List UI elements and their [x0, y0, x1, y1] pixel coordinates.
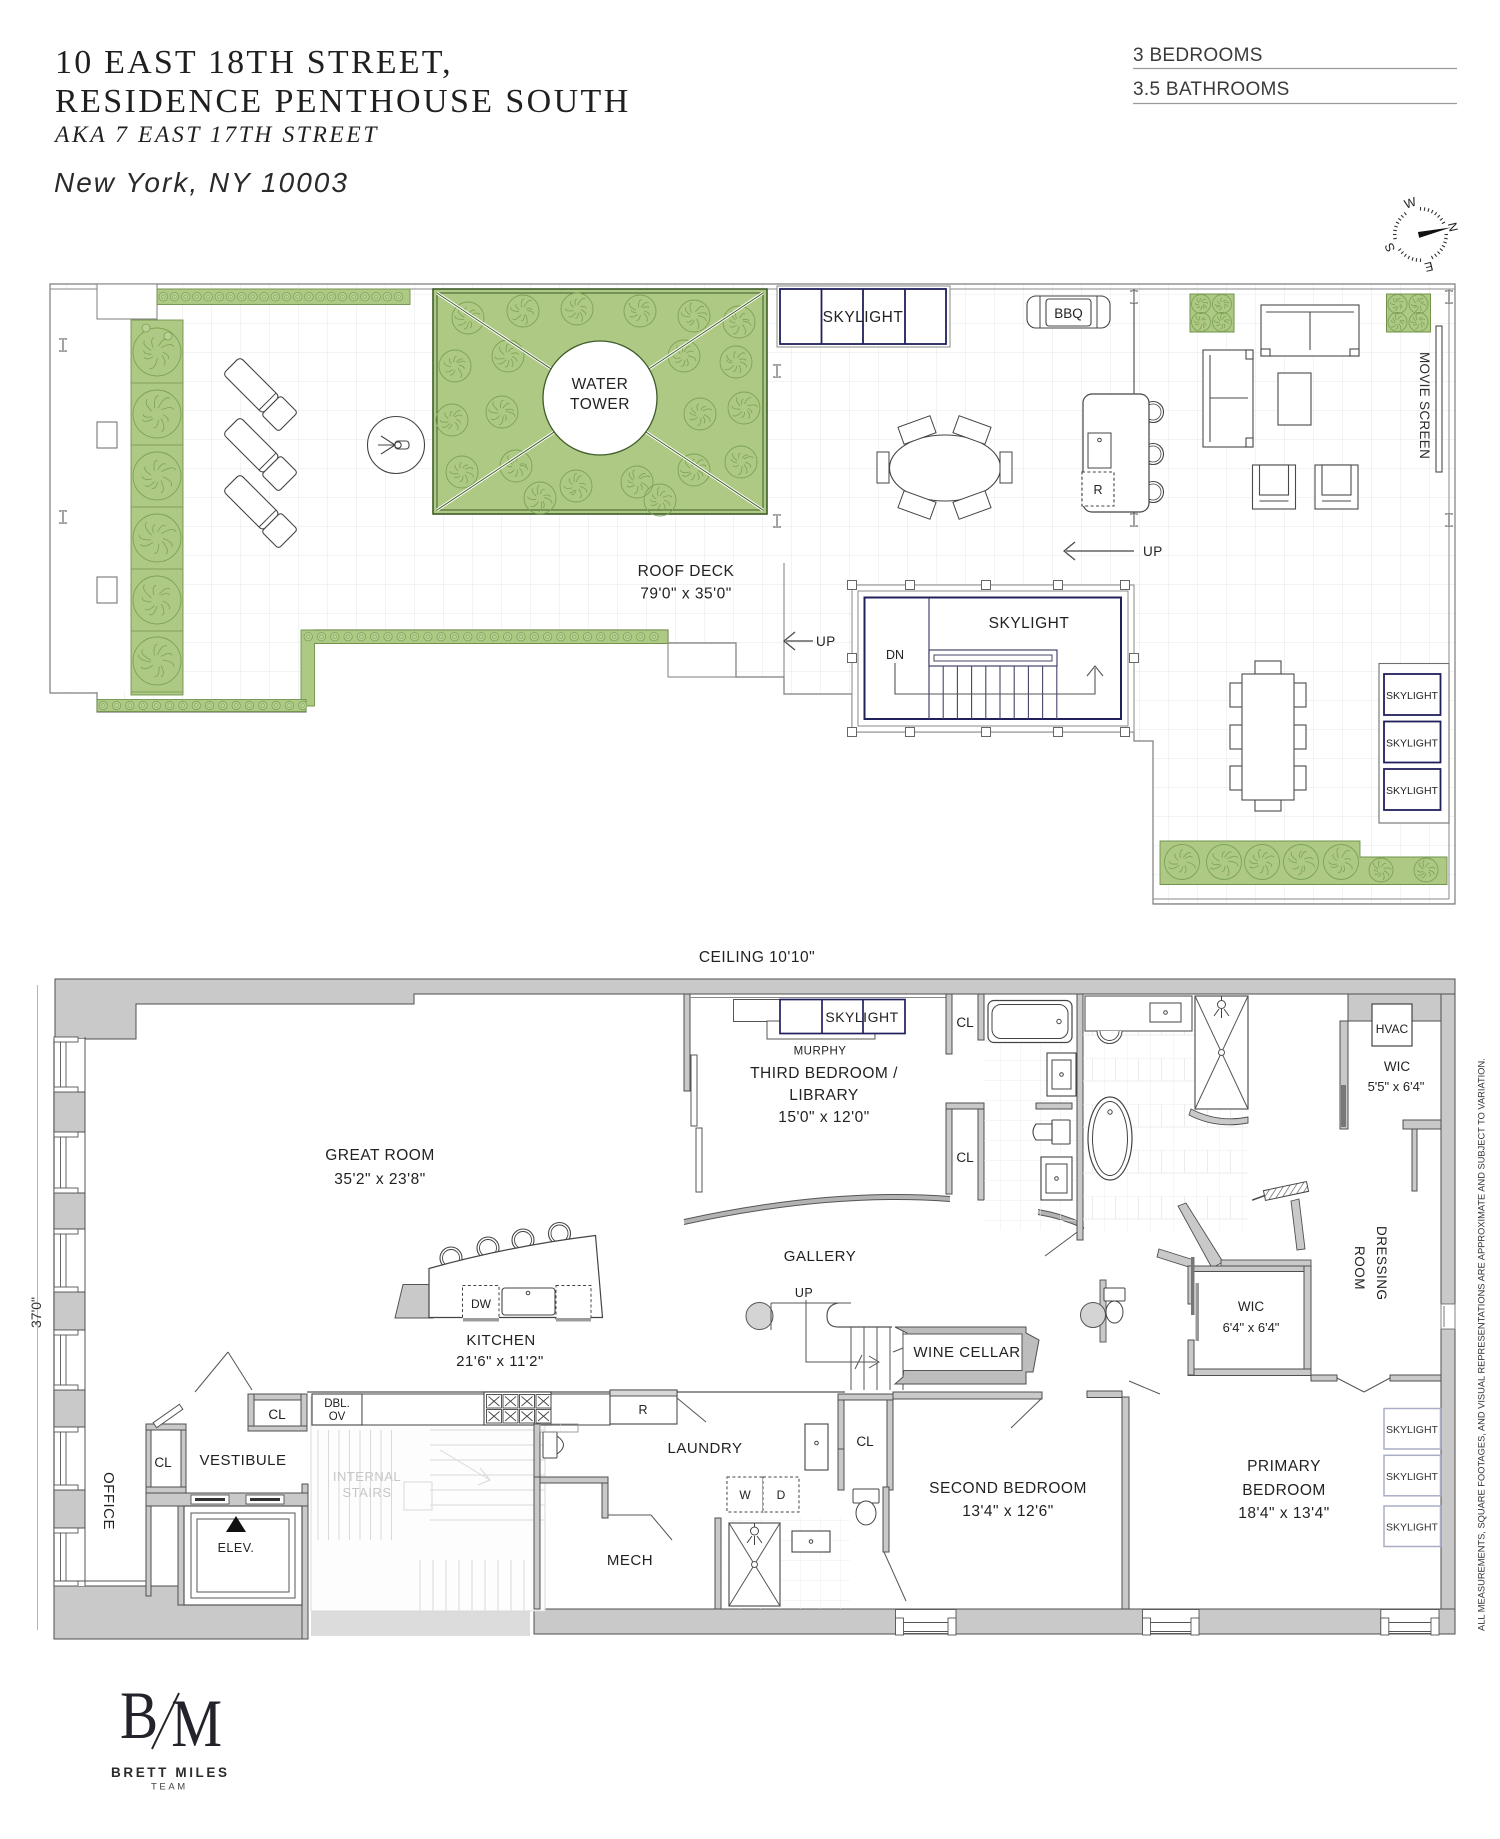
svg-text:SKYLIGHT: SKYLIGHT — [823, 309, 904, 326]
svg-text:CL: CL — [268, 1407, 286, 1422]
svg-text:SKYLIGHT: SKYLIGHT — [989, 615, 1070, 632]
svg-text:WINE CELLAR: WINE CELLAR — [913, 1344, 1020, 1361]
svg-text:B: B — [120, 1677, 158, 1753]
svg-text:UP: UP — [1143, 544, 1163, 559]
svg-text:ROOM: ROOM — [1352, 1246, 1367, 1290]
svg-text:TOWER: TOWER — [570, 396, 630, 413]
svg-text:UP: UP — [816, 634, 836, 649]
svg-text:CL: CL — [856, 1434, 874, 1449]
svg-text:ALL MEASUREMENTS, SQUARE FOOTA: ALL MEASUREMENTS, SQUARE FOOTAGES, AND V… — [1477, 1058, 1487, 1631]
svg-text:New York, NY 10003: New York, NY 10003 — [54, 167, 349, 198]
svg-text:13'4" x 12'6": 13'4" x 12'6" — [962, 1503, 1054, 1520]
svg-text:5'5" x 6'4": 5'5" x 6'4" — [1368, 1079, 1425, 1094]
svg-text:DW: DW — [471, 1297, 492, 1311]
svg-text:21'6" x 11'2": 21'6" x 11'2" — [456, 1353, 544, 1370]
svg-text:MECH: MECH — [607, 1552, 653, 1569]
svg-text:10 EAST 18TH STREET,: 10 EAST 18TH STREET, — [55, 44, 453, 81]
svg-text:DN: DN — [886, 648, 904, 662]
svg-text:18'4" x 13'4": 18'4" x 13'4" — [1238, 1505, 1330, 1522]
svg-text:R: R — [638, 1403, 647, 1417]
svg-text:ELEV.: ELEV. — [218, 1541, 255, 1555]
svg-text:DBL.: DBL. — [324, 1398, 350, 1410]
svg-text:35'2" x 23'8": 35'2" x 23'8" — [334, 1171, 426, 1188]
svg-text:R: R — [1093, 483, 1102, 497]
svg-text:ROOF DECK: ROOF DECK — [638, 563, 735, 580]
svg-text:SECOND BEDROOM: SECOND BEDROOM — [929, 1480, 1087, 1497]
svg-text:SKYLIGHT: SKYLIGHT — [1386, 738, 1439, 750]
svg-text:CL: CL — [956, 1015, 974, 1030]
svg-text:DRESSING: DRESSING — [1374, 1226, 1389, 1301]
svg-text:D: D — [777, 1488, 786, 1502]
svg-text:OV: OV — [329, 1411, 346, 1423]
svg-text:WATER: WATER — [572, 376, 629, 393]
svg-text:SKYLIGHT: SKYLIGHT — [1386, 1424, 1439, 1436]
svg-text:HVAC: HVAC — [1376, 1022, 1409, 1036]
svg-text:GALLERY: GALLERY — [784, 1248, 856, 1265]
svg-text:UP: UP — [795, 1286, 813, 1300]
svg-text:THIRD BEDROOM /: THIRD BEDROOM / — [750, 1065, 898, 1082]
svg-text:WIC: WIC — [1384, 1059, 1410, 1074]
svg-text:TEAM: TEAM — [151, 1782, 188, 1793]
svg-text:KITCHEN: KITCHEN — [466, 1332, 535, 1349]
svg-text:SKYLIGHT: SKYLIGHT — [1386, 785, 1439, 797]
svg-text:BBQ: BBQ — [1054, 306, 1083, 321]
svg-text:SKYLIGHT: SKYLIGHT — [1386, 1522, 1439, 1534]
svg-text:WIC: WIC — [1238, 1299, 1264, 1314]
svg-text:37'0": 37'0" — [28, 1297, 44, 1328]
svg-text:VESTIBULE: VESTIBULE — [199, 1452, 286, 1469]
svg-text:MOVIE SCREEN: MOVIE SCREEN — [1417, 352, 1432, 459]
svg-text:AKA 7 EAST 17TH STREET: AKA 7 EAST 17TH STREET — [53, 122, 379, 148]
svg-text:LIBRARY: LIBRARY — [789, 1087, 859, 1104]
svg-text:3 BEDROOMS: 3 BEDROOMS — [1133, 45, 1263, 66]
svg-text:SKYLIGHT: SKYLIGHT — [825, 1009, 898, 1025]
svg-text:3.5 BATHROOMS: 3.5 BATHROOMS — [1133, 79, 1290, 100]
svg-text:MURPHY: MURPHY — [794, 1046, 847, 1058]
svg-text:INTERNAL: INTERNAL — [333, 1469, 401, 1484]
svg-text:SKYLIGHT: SKYLIGHT — [1386, 1471, 1439, 1483]
svg-text:RESIDENCE PENTHOUSE SOUTH: RESIDENCE PENTHOUSE SOUTH — [55, 83, 631, 120]
svg-text:LAUNDRY: LAUNDRY — [668, 1440, 743, 1457]
svg-text:W: W — [739, 1488, 751, 1502]
svg-text:PRIMARY: PRIMARY — [1247, 1458, 1321, 1475]
svg-text:OFFICE: OFFICE — [100, 1472, 117, 1530]
svg-text:STAIRS: STAIRS — [343, 1485, 392, 1500]
svg-text:79'0" x 35'0": 79'0" x 35'0" — [640, 586, 732, 603]
svg-text:CEILING 10'10": CEILING 10'10" — [699, 949, 815, 966]
svg-text:CL: CL — [956, 1150, 974, 1165]
svg-text:CL: CL — [154, 1455, 172, 1470]
svg-text:M: M — [171, 1685, 222, 1761]
svg-text:SKYLIGHT: SKYLIGHT — [1386, 690, 1439, 702]
svg-text:BRETT MILES: BRETT MILES — [111, 1765, 230, 1780]
svg-text:GREAT ROOM: GREAT ROOM — [325, 1147, 435, 1164]
svg-text:6'4" x 6'4": 6'4" x 6'4" — [1223, 1320, 1280, 1335]
svg-text:15'0" x 12'0": 15'0" x 12'0" — [778, 1109, 870, 1126]
svg-text:BEDROOM: BEDROOM — [1242, 1482, 1326, 1499]
